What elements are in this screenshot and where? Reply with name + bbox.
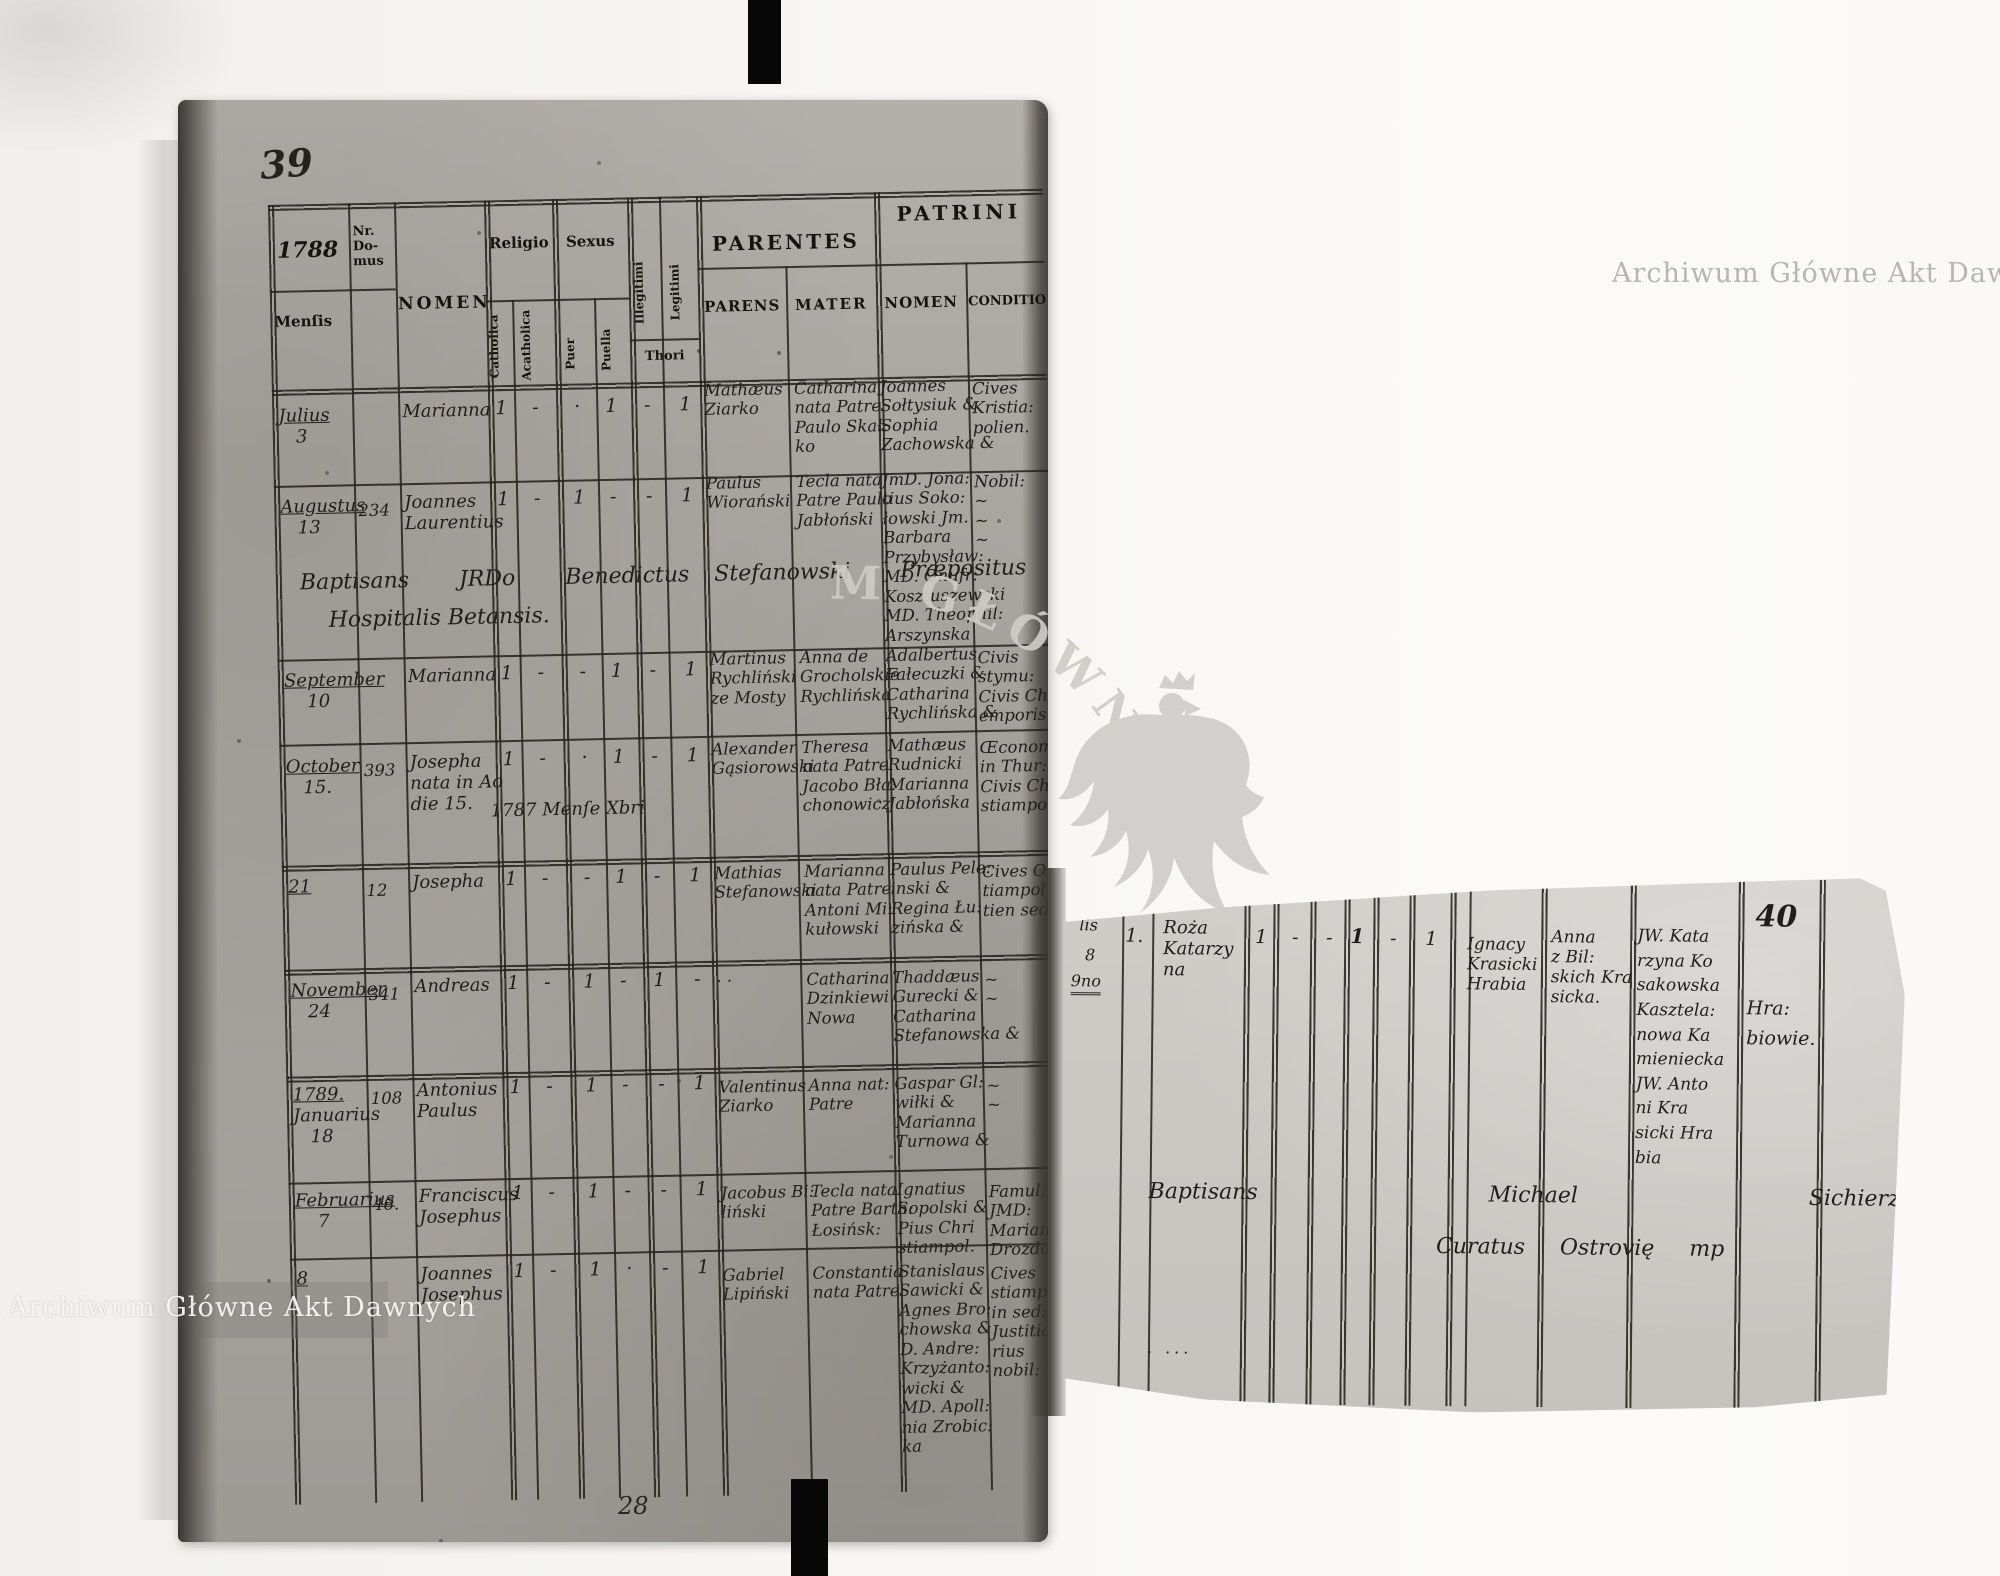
header-patrini-nomen: NOMEN [876,292,966,312]
header-mater: MATER [786,294,876,314]
archive-watermark-bottom-left: Archiwum Główne Akt Dawnych [8,1292,476,1323]
fragment-rule-vertical [1445,876,1457,1406]
cell-illegitimi: - [641,745,667,768]
header-puella: Puella [598,320,613,380]
cell-mensis: October 15. [286,755,371,799]
cell-puella: - [600,486,626,509]
cell-puer: - [574,866,600,889]
header-puer: Puer [563,327,578,381]
fragment-note-line2: Curatus Ostrovię mp [1436,1234,1725,1263]
header-nr-domus: Nr. Do- mus [352,224,395,270]
fragment-ink-dots: . ... [1147,1339,1193,1358]
cell-puella: · [616,1257,642,1280]
cell-parens: Ignacy Krasicki Hrabia [1467,934,1538,995]
cell-legitimi: 1 [679,744,705,767]
cell-acatholica: - [536,1075,562,1098]
cell-illegitimi: - [650,1179,676,1202]
cell-puella: - [614,1179,640,1202]
cell-acatholica: - [528,661,554,684]
fragment-rule-vertical [1339,875,1351,1405]
table-rule-horizontal [270,288,396,293]
cell-mater: Anna nat: Patre [808,1074,905,1115]
cell-legitimi: - [684,968,710,991]
ink-specks [178,100,180,102]
cell-illegitimi: - [634,394,660,417]
cell-legitimi: 1 [690,1256,716,1279]
cell-acatholica: - [529,747,555,770]
film-registration-bar-bottom [791,1479,828,1576]
cell-puella: 1 [604,660,630,683]
cell-mater: Tecla nata Patre Barth: Łosińsk: [811,1180,908,1240]
cell-puer: · [564,395,590,418]
cell-illegitimi: - [648,1073,674,1096]
header-thori: Thori [630,348,699,364]
table-rule-horizontal [697,261,1044,270]
cell-puer: 1 [576,970,602,993]
cell-puella: 1 [608,865,634,888]
cell-puella: 1 [1347,925,1367,949]
baptism-note-line2: Hospitalis Betansis. [328,603,550,634]
cell-mater: Catharina nata Patre Paulo Skał: ko [794,377,892,457]
cell-illegitimi: - [640,659,666,682]
folio-number-left: 39 [259,140,315,188]
cell-puella: - [610,969,636,992]
cell-puer: 1 [566,486,592,509]
cell-puer: 1 [578,1074,604,1097]
cell-mensis: Julius 3 [278,404,363,448]
header-year: 1788 [277,237,348,264]
cell-puella: - [612,1073,638,1096]
header-patrini: PATRINI [874,199,1043,227]
header-legitimi: Legitimi [667,248,683,336]
cell-puer: 1 [581,1180,607,1203]
cell-puer: - [1319,927,1339,950]
fragment-rule-vertical [1536,877,1548,1407]
cell-nr: 108 [371,1088,411,1108]
cell-mater: Anna z Bil: skich Kra sicka. [1551,927,1633,1008]
cell-puer: 1 [582,1258,608,1281]
cell-conditio: Cives Kristia: polien. [972,378,1048,438]
cell-nr: 234 [358,500,398,520]
film-registration-bar-top [748,0,781,84]
cell-conditio: Hra: biowie. [1746,993,1816,1055]
fragment-rule-vertical [1368,875,1380,1405]
folio-number-right: 40 [1755,899,1797,935]
cell-parens: Jacobus Bi: liński [721,1182,814,1223]
table-rule-horizontal [630,338,699,341]
cell-mensis: Augustus 13 [280,495,365,539]
cell-mensis: Februarius 7 [295,1189,380,1233]
header-parentes: PARENTES [697,228,875,256]
table-rule-vertical [552,199,585,1499]
cell-mensis: September 10 [284,669,369,713]
archival-scan: 39 28 1788 Nr. Do- mus Menſis NOMEN Reli… [0,0,2000,1576]
cell-illegitimi: - [644,865,670,888]
cell-puella: 1 [598,395,624,418]
cell-mensis: 1789. Januarius 18 [292,1083,377,1148]
cell-nr: 393 [364,760,404,780]
cell-legitimi: 1 [688,1178,714,1201]
header-parens: PARENS [698,296,786,316]
cell-parens: Gabriel Lipiński [722,1264,815,1305]
cell-puer: - [570,660,596,683]
cell-acatholica: - [522,396,548,419]
fragment-rule-vertical [1733,879,1745,1409]
cell-puer: · [571,746,597,769]
cell-nr: 12 [366,880,406,900]
cell-acatholica: - [539,1181,565,1204]
cell-acatholica: - [540,1259,566,1282]
cell-legitimi: 1 [686,1072,712,1095]
cell-illegitimi: - [636,485,662,508]
cell-acatholica: - [524,487,550,510]
cell-puella: 1 [605,746,631,769]
header-conditio: CONDITIO [968,293,1048,310]
cell-nr: 46. [373,1194,413,1214]
table-rule-vertical [659,197,688,1497]
header-mensis: Menſis [274,311,350,331]
cell-acatholica: - [532,867,558,890]
cell-illegitimi: - [652,1257,678,1280]
cell-patrini: JW. Kata rzyna Ko sakowska Kasztela: now… [1635,924,1726,1171]
table-rule-vertical [627,197,660,1497]
cell-mensis: November 24 [290,979,375,1023]
cell-illegitimi: 1 [646,969,672,992]
cell-legitimi: 1 [674,484,700,507]
fragment-rule-vertical [1814,880,1826,1410]
cell-parens: Valentinus Ziarko [718,1076,811,1117]
cell-legitimi: 1 [682,864,708,887]
cell-legitimi: 1 [672,393,698,416]
cell-nr: 341 [368,984,408,1004]
cell-mater: Constantia nata Patre [812,1262,909,1303]
cell-acatholica: - [534,971,560,994]
header-acatholica: Acatholica [518,307,534,383]
cell-mensis: 21 [288,875,372,898]
cell-illegitimi: - [1383,927,1403,950]
cell-legitimi: 1 [678,658,704,681]
fragment-rule-vertical [1404,876,1416,1406]
cell-legitimi: 1 [1421,928,1441,951]
archive-eagle-watermark: M GŁÓWNE·H [770,510,1310,1030]
header-religio: Religio [485,233,553,252]
archive-watermark-top-right: Archiwum Główne Akt Dawnych [1612,258,2000,289]
header-sexus: Sexus [553,231,628,251]
table-rule-vertical [484,200,517,1500]
header-nomen: NOMEN [398,292,484,314]
